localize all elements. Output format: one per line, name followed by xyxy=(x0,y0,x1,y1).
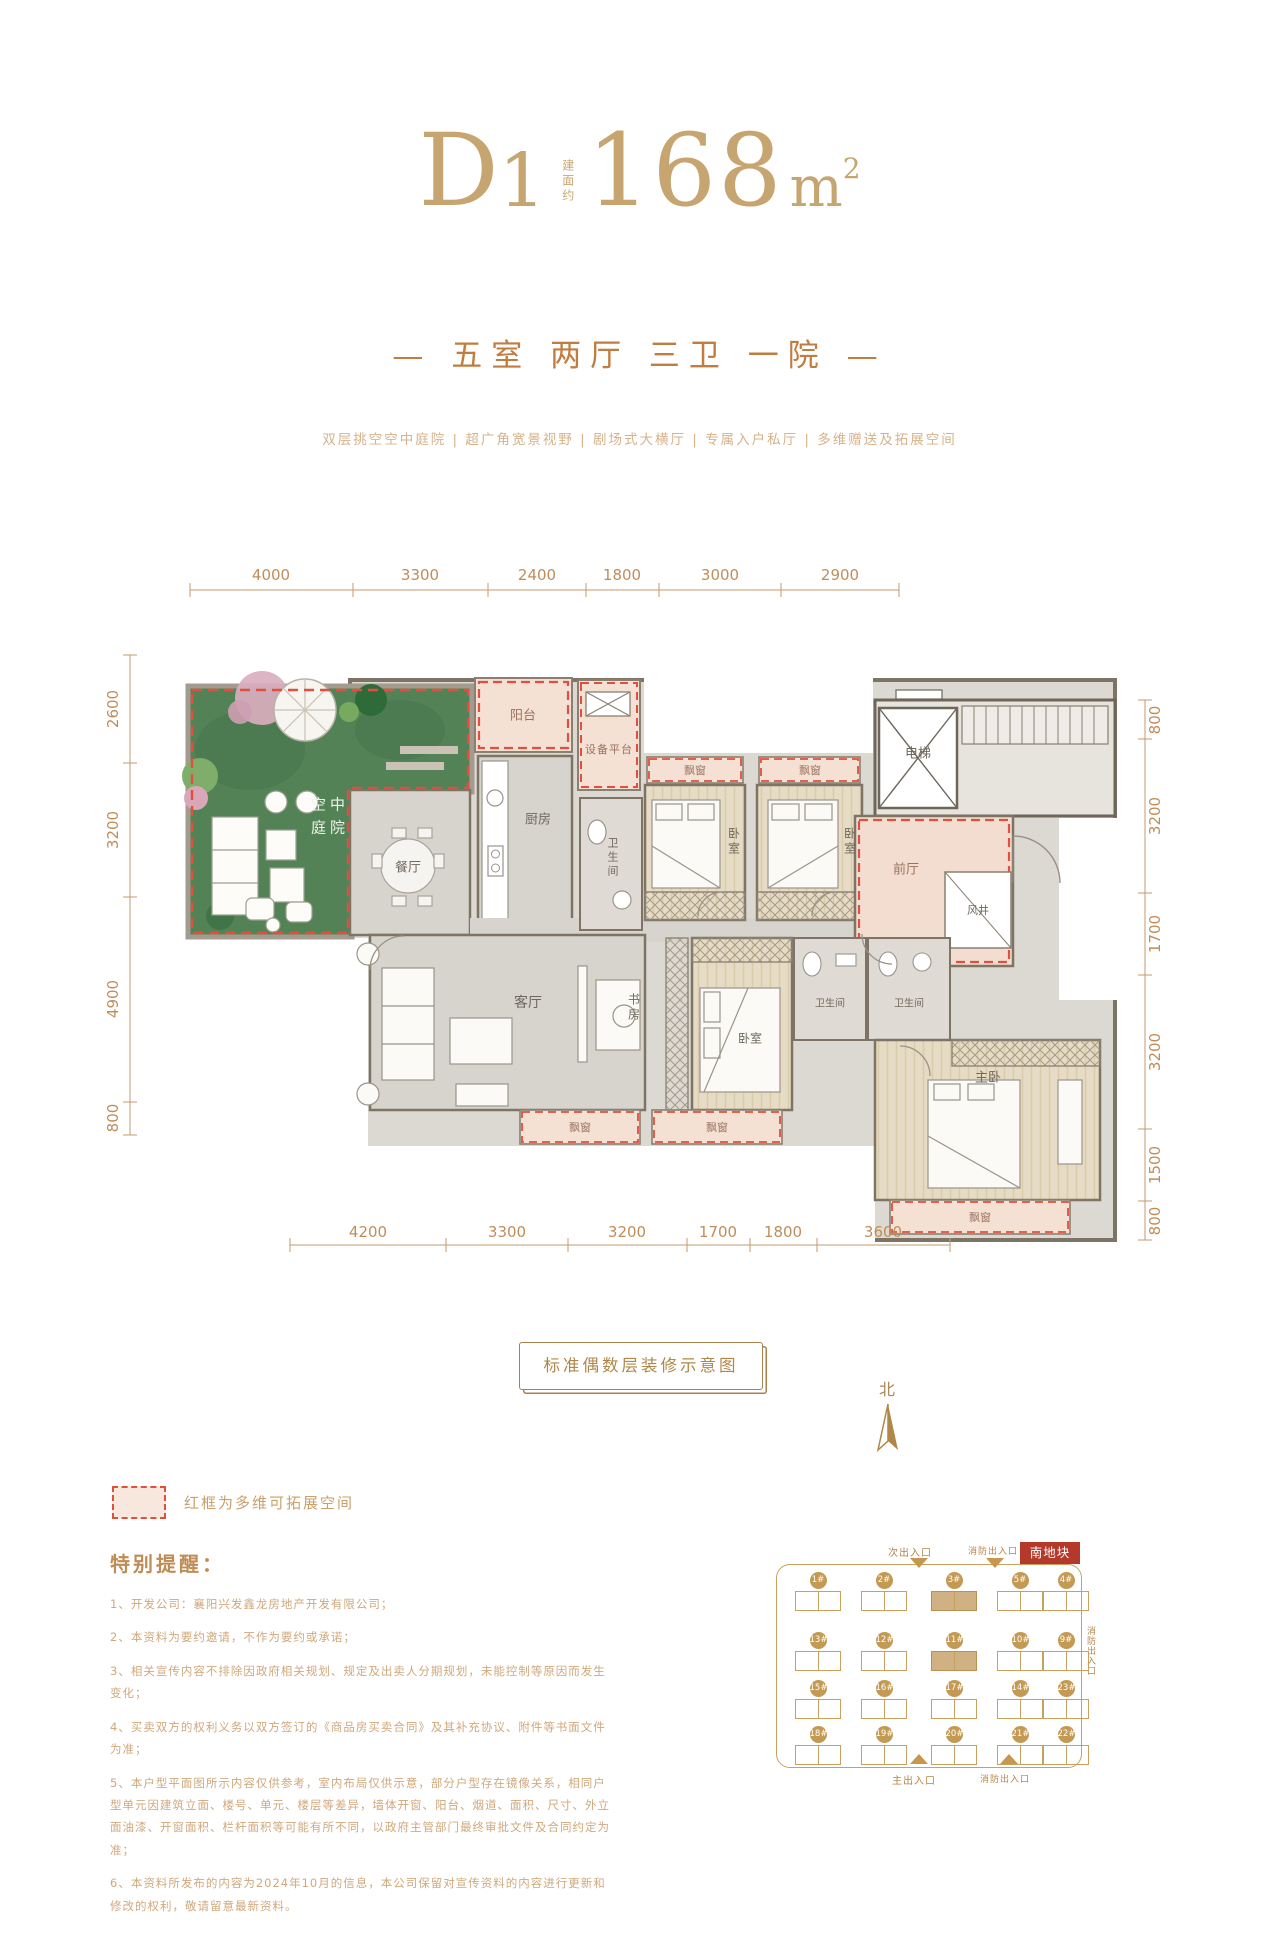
building-badge: 2# xyxy=(876,1572,893,1589)
building-shape-highlighted xyxy=(931,1591,977,1611)
notice-item: 5、本户型平面图所示内容仅供参考，室内布局仅供示意，部分户型存在镜像关系，相同户… xyxy=(110,1772,618,1862)
svg-text:3600: 3600 xyxy=(864,1223,902,1241)
building-badge: 5# xyxy=(1012,1572,1029,1589)
building-shape xyxy=(861,1591,907,1611)
svg-text:1700: 1700 xyxy=(1146,915,1164,953)
special-notice: 特别提醒： 1、开发公司：襄阳兴发鑫龙房地产开发有限公司； 2、本资料为要约邀请… xyxy=(110,1548,618,1928)
building-badge: 19# xyxy=(876,1726,893,1743)
basin-icon xyxy=(913,953,931,971)
floorplan-flyer: D1 建面约 168 m2 — 五室 两厅 三卫 一院 — 双层挑空空中庭院 |… xyxy=(0,0,1279,1944)
building-badge: 21# xyxy=(1012,1726,1029,1743)
notice-item: 1、开发公司：襄阳兴发鑫龙房地产开发有限公司； xyxy=(110,1593,618,1615)
notice-title: 特别提醒： xyxy=(110,1548,618,1577)
building-shape xyxy=(1043,1651,1089,1671)
building-shape xyxy=(795,1745,841,1765)
room-label-bath3: 卫生间 xyxy=(894,995,924,1010)
bathroom-3 xyxy=(868,938,950,1040)
site-building: 17# xyxy=(926,1680,982,1719)
building-shape xyxy=(1043,1699,1089,1719)
building-shape xyxy=(931,1745,977,1765)
area-unit: m2 xyxy=(790,155,861,216)
room-label-master: 主卧 xyxy=(975,1067,1001,1086)
building-shape xyxy=(795,1699,841,1719)
svg-text:800: 800 xyxy=(1146,706,1164,735)
svg-text:3200: 3200 xyxy=(1146,797,1164,835)
site-building: 11# xyxy=(926,1632,982,1671)
building-badge: 9# xyxy=(1058,1632,1075,1649)
room-label-shaft: 风井 xyxy=(967,902,989,918)
entrance-top-fire: 消防出入口 xyxy=(968,1544,1018,1557)
building-badge: 15# xyxy=(810,1680,827,1697)
unit-letter: D xyxy=(418,126,498,216)
floor-plan-drawing: 4000 3300 2400 1800 3000 2900 2600 3200 … xyxy=(100,540,1180,1350)
building-badge: 20# xyxy=(946,1726,963,1743)
svg-text:1800: 1800 xyxy=(764,1223,802,1241)
north-indicator: 北 xyxy=(856,1376,920,1460)
bathroom-2 xyxy=(794,938,866,1040)
room-label-bedroom-c: 卧室 xyxy=(738,1030,762,1047)
svg-text:4000: 4000 xyxy=(252,566,290,584)
building-shape xyxy=(1043,1591,1089,1611)
site-building: 16# xyxy=(856,1680,912,1719)
entrance-bottom-fire: 消防出入口 xyxy=(980,1772,1030,1785)
building-badge: 22# xyxy=(1058,1726,1075,1743)
legend-text: 红框为多维可拓展空间 xyxy=(184,1492,354,1513)
room-label-bedroom-b: 卧室 xyxy=(842,827,859,857)
building-badge: 16# xyxy=(876,1680,893,1697)
site-building: 19# xyxy=(856,1726,912,1765)
svg-text:3200: 3200 xyxy=(608,1223,646,1241)
room-label-bath2: 卫生间 xyxy=(815,995,845,1010)
site-building: 1# xyxy=(790,1572,846,1611)
north-arrow-icon xyxy=(866,1400,910,1456)
room-label-kitchen: 厨房 xyxy=(525,809,551,828)
basin-icon xyxy=(613,891,631,909)
notice-item: 3、相关宣传内容不排除因政府相关规划、规定及出卖人分期规划，未能控制等原因而发生… xyxy=(110,1660,618,1705)
building-badge: 3# xyxy=(946,1572,963,1589)
room-label-balcony: 阳台 xyxy=(510,705,536,724)
site-building: 22# xyxy=(1038,1726,1094,1765)
building-shape xyxy=(861,1651,907,1671)
building-shape xyxy=(795,1591,841,1611)
svg-text:2600: 2600 xyxy=(104,690,122,728)
svg-text:4200: 4200 xyxy=(349,1223,387,1241)
room-label-foyer: 前厅 xyxy=(893,859,919,878)
north-label: 北 xyxy=(856,1376,920,1400)
svg-text:3200: 3200 xyxy=(104,811,122,849)
building-badge: 4# xyxy=(1058,1572,1075,1589)
room-label-equipment: 设备平台 xyxy=(584,742,634,759)
bed-icon xyxy=(652,800,720,888)
equipment-platform xyxy=(578,680,640,790)
room-label-living: 客厅 xyxy=(514,992,542,1012)
site-building: 2# xyxy=(856,1572,912,1611)
entrance-bottom-main: 主出入口 xyxy=(892,1772,936,1787)
svg-text:2900: 2900 xyxy=(821,566,859,584)
selling-points: 双层挑空空中庭院 | 超广角宽景视野 | 剧场式大横厅 | 专属入户私厅 | 多… xyxy=(0,428,1279,448)
building-badge: 12# xyxy=(876,1632,893,1649)
entrance-triangle-icon xyxy=(910,1558,928,1568)
building-shape xyxy=(997,1651,1043,1671)
entrance-top-secondary: 次出入口 xyxy=(888,1544,932,1559)
notice-item: 6、本资料所发布的内容为2024年10月的信息，本公司保留对宣传资料的内容进行更… xyxy=(110,1872,618,1917)
building-badge: 11# xyxy=(946,1632,963,1649)
site-building: 9# xyxy=(1038,1632,1094,1671)
site-building: 12# xyxy=(856,1632,912,1671)
svg-text:1700: 1700 xyxy=(699,1223,737,1241)
bedroom-c xyxy=(692,938,792,1110)
legend-red-dash-swatch xyxy=(112,1486,166,1519)
svg-text:4900: 4900 xyxy=(104,980,122,1018)
svg-text:800: 800 xyxy=(1146,1207,1164,1236)
building-badge: 14# xyxy=(1012,1680,1029,1697)
site-building: 20# xyxy=(926,1726,982,1765)
svg-text:3000: 3000 xyxy=(701,566,739,584)
room-label-bath1: 卫生间 xyxy=(604,837,620,879)
site-plan: 南地块 次出入口 消防出入口 主出入口 消防出入口 消防出入口 1# 2# 3#… xyxy=(772,1548,1102,1810)
page-title: D1 建面约 168 m2 xyxy=(0,126,1279,216)
svg-text:3300: 3300 xyxy=(488,1223,526,1241)
notice-item: 4、买卖双方的权利义务以双方签订的《商品房买卖合同》及其补充协议、附件等书面文件… xyxy=(110,1716,618,1761)
building-shape-highlighted xyxy=(931,1651,977,1671)
room-label-courtyard: 空中庭院 xyxy=(305,794,355,839)
layout-subtitle: — 五室 两厅 三卫 一院 — xyxy=(0,330,1279,375)
room-label-elevator: 电梯 xyxy=(905,743,931,762)
entrance-triangle-icon xyxy=(986,1558,1004,1568)
building-shape xyxy=(997,1699,1043,1719)
site-building: 13# xyxy=(790,1632,846,1671)
living-room xyxy=(357,935,645,1110)
building-shape xyxy=(795,1651,841,1671)
building-shape xyxy=(1043,1745,1089,1765)
site-building: 15# xyxy=(790,1680,846,1719)
building-shape xyxy=(997,1745,1043,1765)
tree xyxy=(355,684,387,716)
legend: 红框为多维可拓展空间 xyxy=(112,1486,354,1519)
bed-icon xyxy=(768,800,838,888)
room-label-bay-a: 飘窗 xyxy=(684,762,706,778)
building-badge: 18# xyxy=(810,1726,827,1743)
svg-text:1800: 1800 xyxy=(603,566,641,584)
svg-text:800: 800 xyxy=(104,1104,122,1133)
building-badge: 10# xyxy=(1012,1632,1029,1649)
room-label-dining: 餐厅 xyxy=(395,857,421,876)
svg-text:3200: 3200 xyxy=(1146,1033,1164,1071)
svg-text:1500: 1500 xyxy=(1146,1146,1164,1184)
room-label-study: 书房 xyxy=(626,993,643,1023)
building-shape xyxy=(861,1699,907,1719)
building-badge: 1# xyxy=(810,1572,827,1589)
building-shape xyxy=(931,1699,977,1719)
caption-box: 标准偶数层装修示意图 xyxy=(519,1342,763,1390)
room-label-bay-2: 飘窗 xyxy=(706,1119,728,1135)
stairs xyxy=(962,706,1108,744)
toilet-icon xyxy=(803,952,821,976)
plot-badge: 南地块 xyxy=(1020,1542,1080,1564)
building-badge: 17# xyxy=(946,1680,963,1697)
floor-plan: 4000 3300 2400 1800 3000 2900 2600 3200 … xyxy=(100,540,1180,1350)
svg-text:2400: 2400 xyxy=(518,566,556,584)
unit-number: 1 xyxy=(499,146,546,216)
kitchen xyxy=(478,756,572,936)
site-building: 3# xyxy=(926,1572,982,1611)
building-badge: 13# xyxy=(810,1632,827,1649)
notice-item: 2、本资料为要约邀请，不作为要约或承诺； xyxy=(110,1626,618,1648)
room-label-bedroom-a: 卧室 xyxy=(726,827,743,857)
building-shape xyxy=(861,1745,907,1765)
closet-hatch xyxy=(666,938,688,1110)
room-label-bay-master: 飘窗 xyxy=(969,1209,991,1225)
site-building: 23# xyxy=(1038,1680,1094,1719)
building-shape xyxy=(997,1591,1043,1611)
area-prefix: 建面约 xyxy=(560,159,577,204)
site-building: 4# xyxy=(1038,1572,1094,1611)
room-label-bay-b: 飘窗 xyxy=(799,762,821,778)
room-label-bay-1: 飘窗 xyxy=(569,1119,591,1135)
site-building: 18# xyxy=(790,1726,846,1765)
parasol-icon xyxy=(274,679,336,741)
svg-text:3300: 3300 xyxy=(401,566,439,584)
building-badge: 23# xyxy=(1058,1680,1075,1697)
area-value: 168 xyxy=(587,126,784,216)
